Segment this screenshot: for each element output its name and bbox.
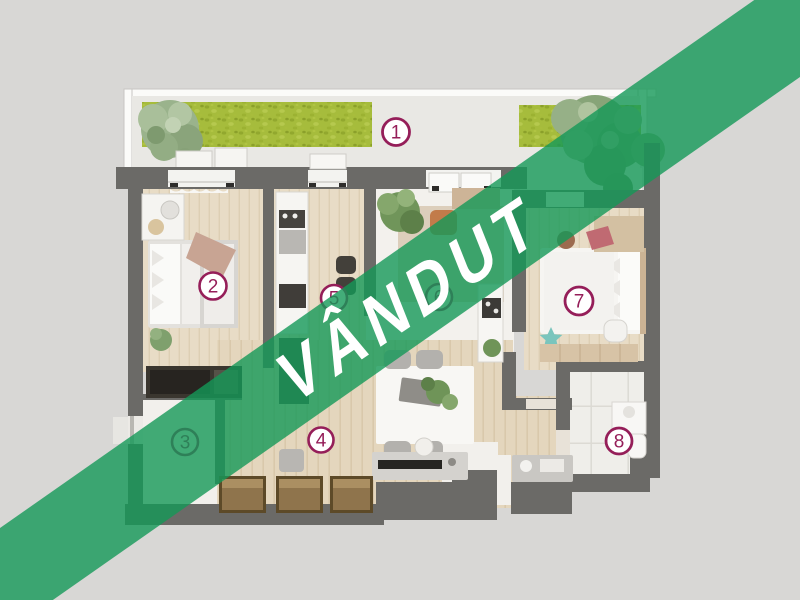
svg-text:1: 1 <box>391 123 402 144</box>
svg-text:8: 8 <box>614 432 625 453</box>
svg-text:2: 2 <box>208 277 219 298</box>
svg-text:4: 4 <box>316 431 327 452</box>
svg-text:7: 7 <box>574 292 585 313</box>
